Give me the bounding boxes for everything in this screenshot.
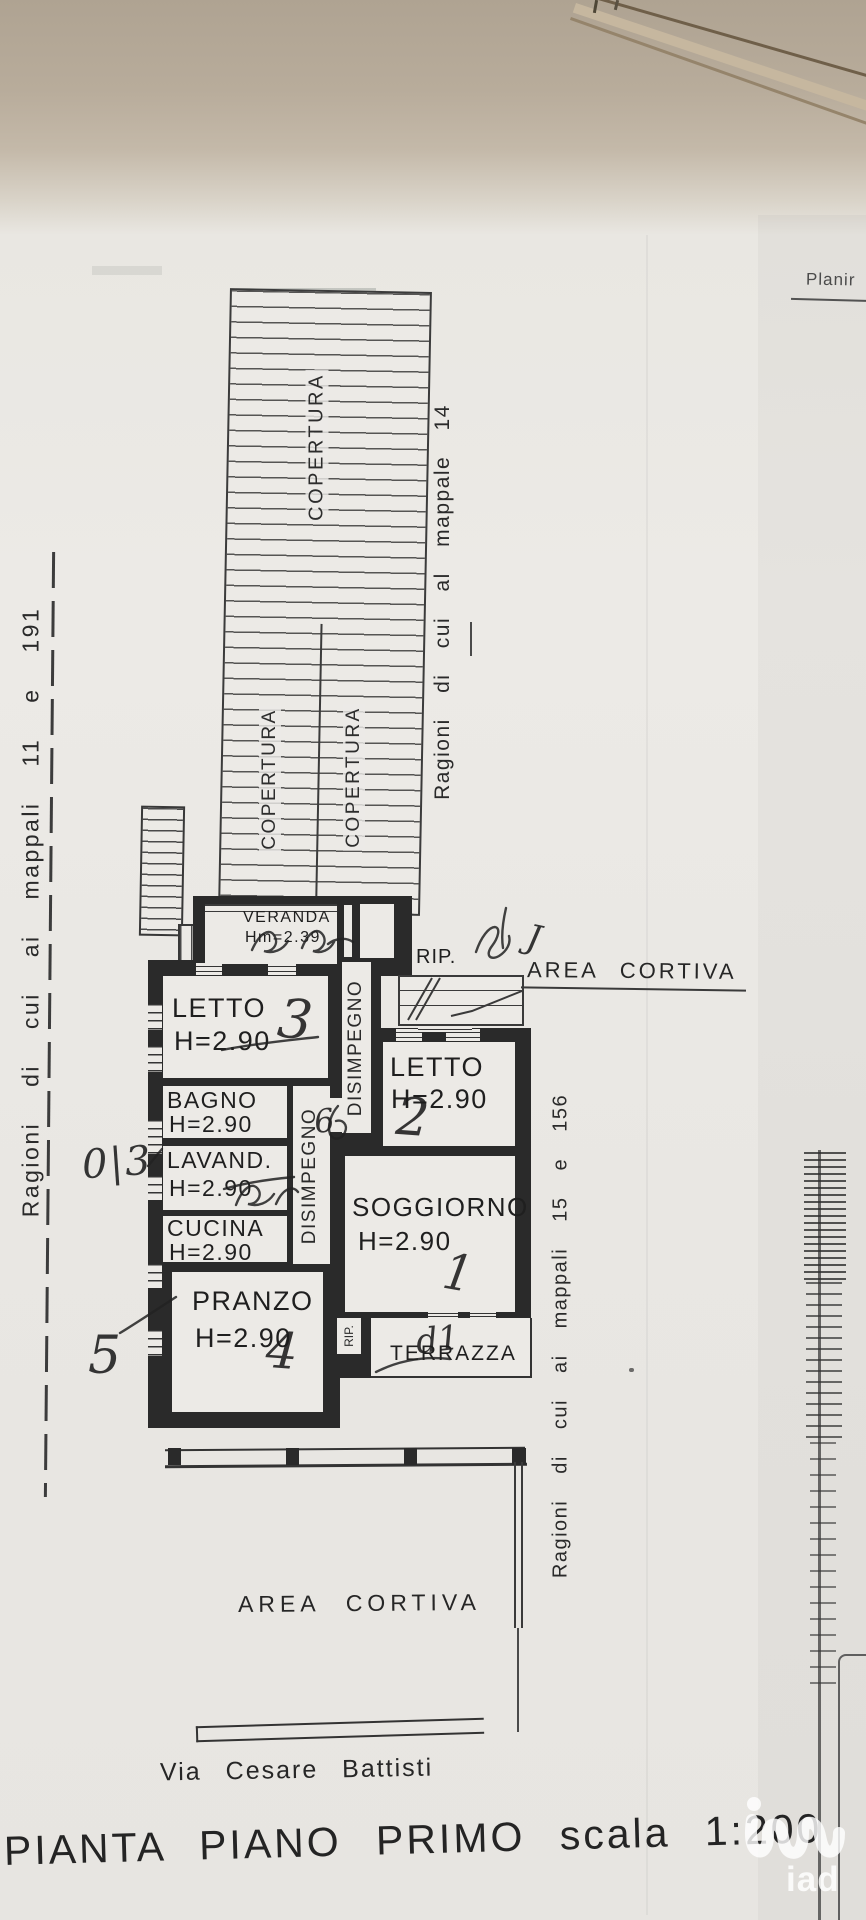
window [148,1330,162,1356]
porch-line [165,1463,527,1468]
paper-crease [646,235,648,1915]
window [148,1264,162,1288]
window [148,1046,162,1072]
boundary-note-right-bottom: Ragioni di cui ai mappali 15 e 156 [550,1094,573,1578]
handwritten-number-pranzo: 4 [264,1321,300,1381]
room-label-bagno: BAGNO [167,1087,258,1114]
room-label-disimpegno-right: DISIMPEGNO [345,980,367,1116]
handwritten-margin-note: 0|3 [80,1138,153,1189]
iad-logo-text: iad [786,1860,840,1900]
room-height-bagno: H=2.90 [169,1111,253,1138]
room-height-soggiorno: H=2.90 [358,1226,452,1257]
boundary-note-left: Ragioni di cui ai mappali 11 e 191 [18,607,45,1218]
area-cortiva-bottom-label: AREA CORTIVA [238,1589,481,1618]
courtyard-boundary-line [517,1628,519,1732]
room-label-cucina: CUCINA [167,1215,264,1242]
room-label-letto2: LETTO [390,1052,484,1083]
background-railway-ticks [804,1152,846,1282]
room-height-veranda: Hm=2.39 [245,929,321,947]
room-label-pranzo: PRANZO [192,1286,314,1317]
window [196,963,222,975]
scribble-rip [476,908,510,958]
porch-line [165,1447,525,1452]
scanned-floor-plan-photo: Planir COPERTURA COPERTURA COPERTURA Rag… [0,0,866,1920]
small-shaft [360,904,394,958]
room-height-lavanderia: H=2.90 [169,1175,253,1202]
background-railway-ticks [810,1442,836,1692]
roof-divider-line [315,624,323,912]
staircase-vertical [139,806,185,937]
room-height-cucina: H=2.90 [169,1239,253,1266]
label-rip-outside: RIP. [416,946,456,969]
courtyard-boundary-line [514,1462,516,1628]
room-height-letto3: H=2.90 [174,1026,271,1057]
porch-post [404,1448,417,1465]
porch-post [286,1448,299,1465]
area-cortiva-top-label: AREA CORTIVA [527,957,737,985]
background-edge-line [587,0,866,82]
handwritten-number-letto2: 2 [394,1087,431,1149]
window [268,963,296,975]
paper-speck [629,1368,634,1372]
roof-label: COPERTURA [259,705,281,852]
street-name-label: Via Cesare Battisti [160,1754,434,1788]
property-boundary-dashed-line [44,552,55,1497]
handwritten-number-letto3: 3 [275,986,316,1052]
background-railway-ticks [806,1282,842,1442]
boundary-note-right-top: Ragioni di cui al mappale 14 [431,404,455,800]
roof-label: COPERTURA [343,703,365,850]
room-label-soggiorno: SOGGIORNO [352,1192,529,1223]
handwritten-note-terrazza: d1 [414,1318,461,1362]
room-label-rip-interno: RIP. [342,1325,356,1347]
corner-sheet-label: Planir [806,270,856,291]
room-label-letto3: LETTO [172,993,266,1024]
ink-bleed-mark [92,266,162,275]
room-label-veranda: VERANDA [243,909,331,927]
window [148,1004,162,1030]
plan-title: PIANTA PIANO PRIMO scala 1:200 [3,1805,823,1875]
iad-watermark-logo: iad [740,1788,864,1910]
background-edge-band [573,3,866,117]
rip-shed-structure [398,975,524,1026]
boundary-dash [470,622,472,656]
handwritten-number-margin: 5 [88,1326,121,1386]
room-label-lavanderia: LAVAND. [167,1147,273,1174]
area-cortiva-top-underline [521,986,746,991]
courtyard-boundary-line [521,1462,523,1628]
handwritten-mark-near-rip: J [523,917,545,959]
roof-label: COPERTURA [306,370,329,524]
window [470,1311,496,1319]
wall-slit [344,905,352,957]
porch-post [168,1448,181,1465]
street-wall [196,1718,484,1743]
